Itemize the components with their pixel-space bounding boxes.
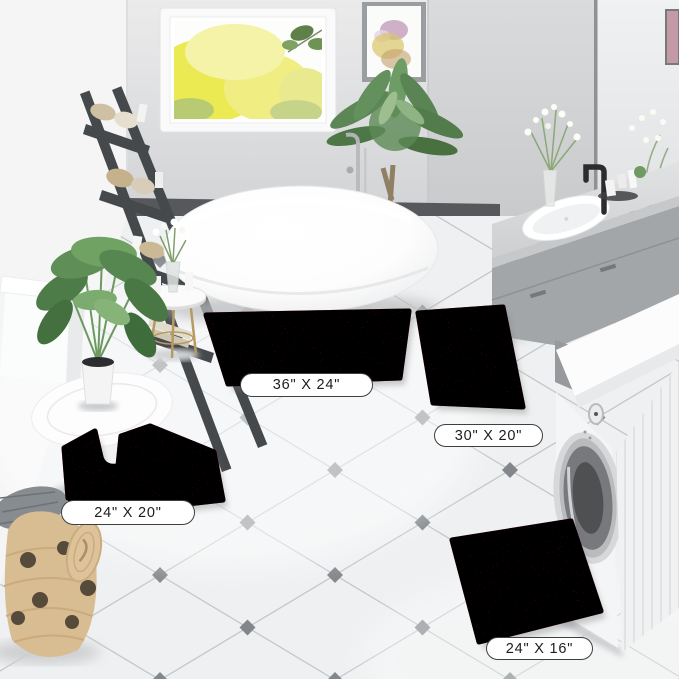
size-label-small-mat: 24" X 16" [486,637,593,660]
bathroom-product-photo: 36" X 24" 30" X 20" 24" X 20" 24" X 16" [0,0,679,679]
mat-runner-30x20 [418,307,523,407]
scene-svg [0,0,679,679]
plant-pot-pebbles [82,357,114,367]
size-label-contour-mat: 24" X 20" [61,500,195,525]
size-label-runner-mat: 30" X 20" [434,424,543,447]
bathtub [162,186,438,325]
counter-mini-plant [634,166,646,178]
mirror-art-reflection [666,10,679,64]
size-label-large-mat: 36" X 24" [240,373,373,397]
window [152,8,336,132]
plant-pot [82,362,114,404]
